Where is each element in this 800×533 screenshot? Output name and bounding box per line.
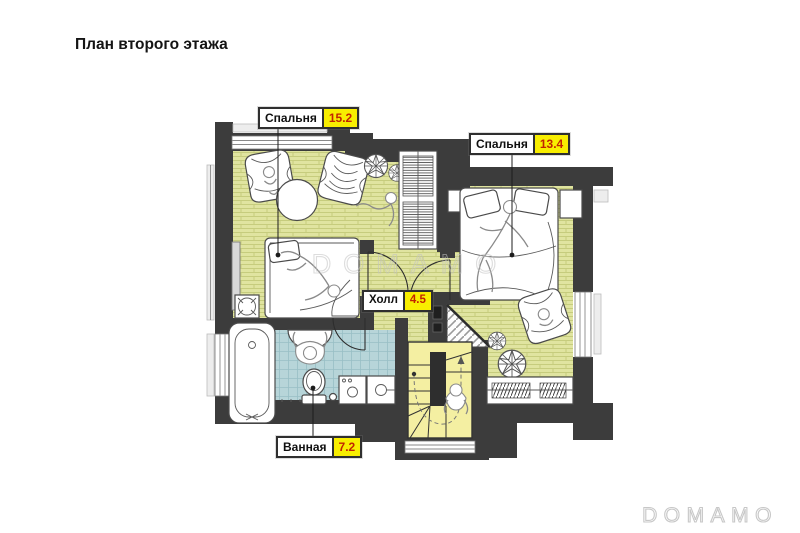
- bathtub: [229, 323, 275, 423]
- bed-bedroom-2: [460, 188, 558, 300]
- round-table: [277, 180, 318, 221]
- watermark-center: DOMAMO: [312, 249, 509, 279]
- window-stairs-bottom: [405, 441, 475, 453]
- room-label-bedroom-2: Спальня 13.4: [469, 133, 570, 155]
- room-area-badge: 7.2: [332, 438, 361, 456]
- wall-panel-icon: [433, 306, 442, 319]
- side-table: [235, 295, 259, 318]
- stair-newel: [430, 352, 446, 406]
- staircase: [408, 342, 472, 438]
- room-area-badge: 13.4: [533, 135, 568, 153]
- plant-icon: [364, 154, 387, 177]
- bin: [330, 394, 337, 401]
- nightstand-left: [448, 190, 461, 212]
- room-name: Спальня: [471, 135, 533, 153]
- room-area-badge: 4.5: [403, 292, 431, 310]
- floor-plan-canvas: DOMAMO DOMAMO: [0, 0, 800, 533]
- wall-switch-icon: [433, 323, 442, 332]
- window-bedroom-2-right: [575, 292, 591, 357]
- floor-plan-page: План второго этажа: [0, 0, 800, 533]
- nightstand-right: [560, 190, 582, 218]
- window-bedroom-1-top: [232, 136, 332, 149]
- bathroom-cabinet: [367, 376, 395, 404]
- room-label-bedroom-1: Спальня 15.2: [258, 107, 359, 129]
- room-label-hall: Холл 4.5: [362, 290, 433, 312]
- wardrobe: [399, 151, 437, 249]
- room-name: Спальня: [260, 109, 322, 127]
- plant-icon: [498, 350, 526, 378]
- watermark-bottom-right: DOMAMO: [642, 504, 778, 527]
- washing-machine: [339, 376, 366, 404]
- room-label-bathroom: Ванная 7.2: [276, 436, 362, 458]
- room-area-badge: 15.2: [322, 109, 357, 127]
- room-name: Ванная: [278, 438, 332, 456]
- convector-shelf: [487, 377, 573, 404]
- plant-icon: [488, 332, 506, 350]
- room-name: Холл: [364, 292, 403, 310]
